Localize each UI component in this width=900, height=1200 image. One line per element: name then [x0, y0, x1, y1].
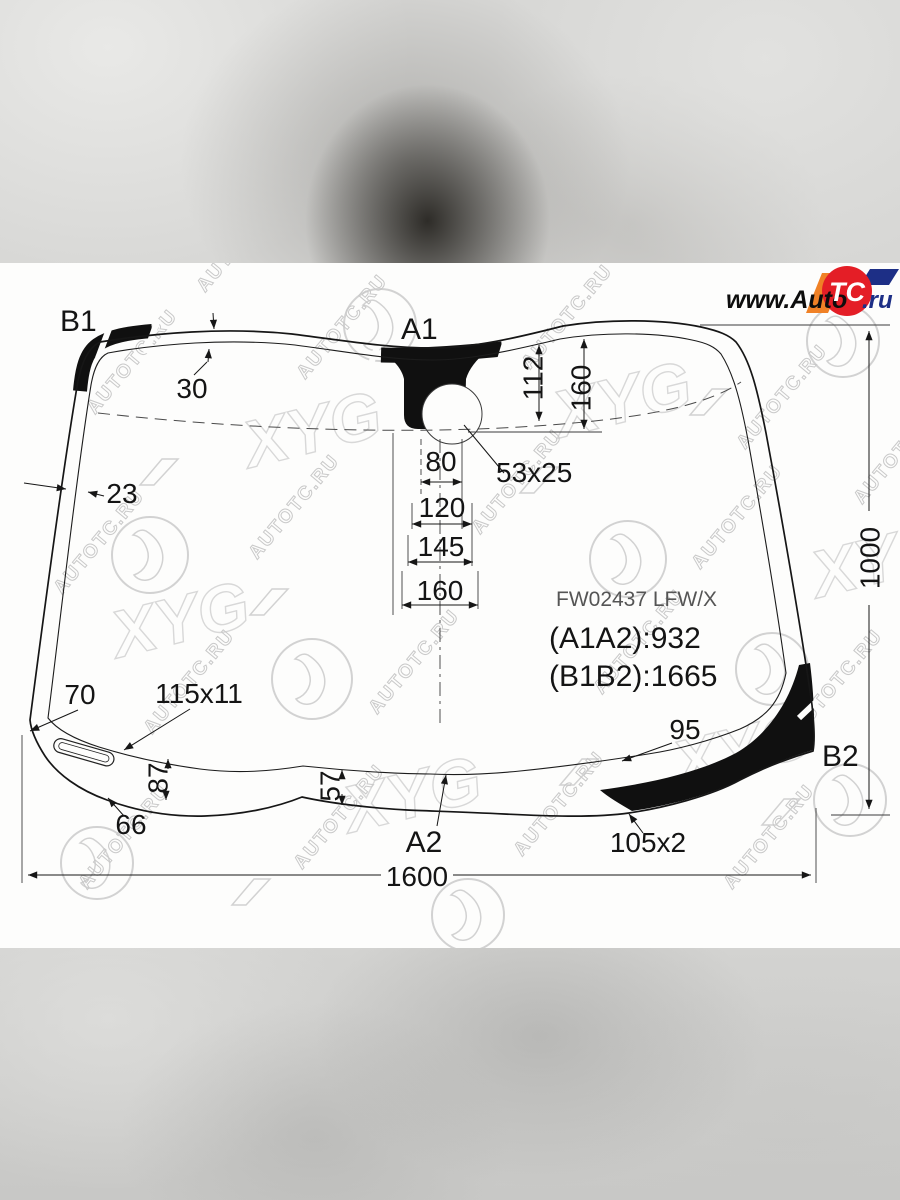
dim-width-label: 1600: [386, 861, 448, 892]
point-b2-label: B2: [822, 740, 859, 773]
dim-66-label: 66: [115, 809, 146, 840]
part-distance-b1b2: (B1B2):1665: [549, 660, 717, 693]
point-a2-label: A2: [406, 826, 443, 859]
dim-side-band-label: 23: [106, 478, 137, 509]
site-logo[interactable]: www.Auto TC .ru: [726, 266, 899, 316]
blurred-backdrop-bottom: [0, 948, 900, 1200]
part-code: FW02437 LFW/X: [556, 588, 717, 611]
dim-105x2-label: 105x2: [610, 827, 686, 858]
dim-145-label: 145: [418, 531, 465, 562]
dim-87-label: 87: [143, 762, 174, 793]
part-distance-a1a2: (A1A2):932: [549, 622, 701, 655]
dim-112-label: 112: [518, 356, 549, 401]
svg-text:AUTOTC.RU: AUTOTC.RU: [720, 780, 819, 893]
dim-95-label: 95: [669, 714, 700, 745]
dim-80-label: 80: [425, 446, 456, 477]
dim-70-label: 70: [64, 679, 95, 710]
logo-tc-text: TC: [829, 277, 865, 307]
windshield-diagram: XYG XYG XYG XYG XYG XYG AUTOTC.RU AUTOTC…: [0, 263, 900, 948]
svg-text:AUTOTC.RU: AUTOTC.RU: [365, 605, 464, 718]
flag-shape-watermark: [140, 389, 800, 905]
sensor-window: [426, 401, 461, 424]
svg-text:XYG: XYG: [232, 376, 389, 482]
dim-slot-label: 115x11: [155, 678, 243, 709]
logo-ru-text: .ru: [862, 287, 893, 314]
svg-text:AUTOTC.RU: AUTOTC.RU: [688, 460, 787, 573]
dim-height-label: 1000: [855, 527, 886, 589]
svg-text:AUTOTC.RU: AUTOTC.RU: [83, 305, 182, 418]
part-info: FW02437 LFW/X (A1A2):932 (B1B2):1665: [549, 588, 717, 693]
svg-text:AUTOTC.RU: AUTOTC.RU: [850, 395, 900, 508]
point-b1-label: B1: [60, 305, 97, 338]
blurred-backdrop-top: [0, 0, 900, 263]
point-a1-label: A1: [401, 313, 438, 346]
dim-sensor-label: 53x25: [496, 457, 572, 488]
page: XYG XYG XYG XYG XYG XYG AUTOTC.RU AUTOTC…: [0, 0, 900, 1200]
svg-text:AUTOTC.RU: AUTOTC.RU: [510, 747, 609, 860]
dim-120-label: 120: [419, 492, 466, 523]
diagram-canvas: XYG XYG XYG XYG XYG XYG AUTOTC.RU AUTOTC…: [0, 263, 900, 948]
dim-57-label: 57: [315, 770, 346, 801]
svg-text:AUTOTC.RU: AUTOTC.RU: [193, 263, 292, 296]
svg-text:AUTOTC.RU: AUTOTC.RU: [293, 270, 392, 383]
dim-160v-label: 160: [566, 365, 597, 412]
dim-top-band-label: 30: [176, 373, 207, 404]
dim-160-label: 160: [417, 575, 464, 606]
